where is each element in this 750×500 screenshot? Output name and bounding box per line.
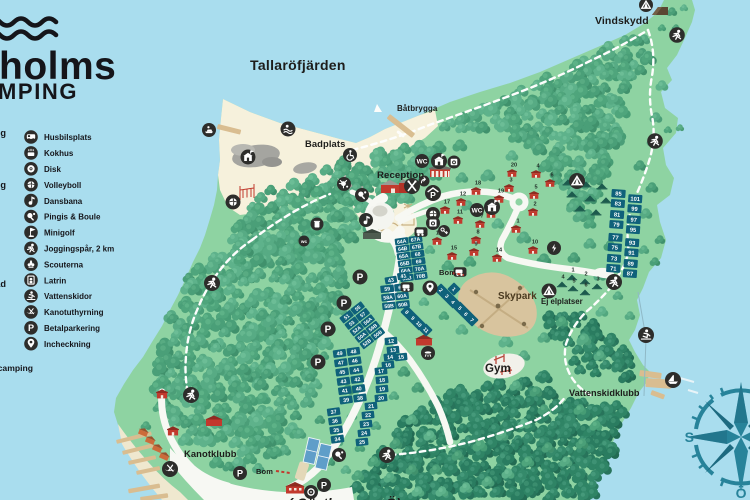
svg-text:37: 37 xyxy=(330,409,337,416)
svg-text:101: 101 xyxy=(630,196,641,203)
svg-text:79: 79 xyxy=(613,222,621,228)
svg-text:14: 14 xyxy=(496,248,503,254)
svg-text:Kokhus: Kokhus xyxy=(44,149,74,158)
svg-text:2: 2 xyxy=(584,272,587,278)
svg-text:Husbilsplats: Husbilsplats xyxy=(44,133,92,142)
svg-text:58B: 58B xyxy=(384,303,394,310)
svg-text:12: 12 xyxy=(460,192,466,198)
svg-text:P: P xyxy=(321,480,327,490)
svg-text:89: 89 xyxy=(627,261,635,267)
svg-text:P: P xyxy=(357,273,364,284)
svg-text:41: 41 xyxy=(342,388,349,395)
svg-text:Skypark: Skypark xyxy=(498,291,537,302)
svg-text:P: P xyxy=(28,323,34,333)
svg-text:P: P xyxy=(430,190,436,200)
svg-text:12: 12 xyxy=(388,339,395,346)
svg-text:42: 42 xyxy=(354,377,361,384)
svg-text:Vindskydd: Vindskydd xyxy=(595,15,649,27)
svg-text:Husvagnsparkering: Husvagnsparkering xyxy=(0,128,6,138)
svg-text:Vattenskidklubb: Vattenskidklubb xyxy=(569,388,640,398)
svg-text:Badplats: Badplats xyxy=(305,138,345,149)
svg-text:9: 9 xyxy=(474,242,477,248)
svg-text:8: 8 xyxy=(476,230,479,236)
svg-text:18: 18 xyxy=(475,181,481,187)
svg-text:Incheckning: Incheckning xyxy=(44,340,91,349)
svg-text:43: 43 xyxy=(340,379,347,386)
svg-text:73: 73 xyxy=(610,256,618,262)
svg-text:19: 19 xyxy=(379,387,386,394)
svg-text:97: 97 xyxy=(630,218,637,224)
svg-text:95: 95 xyxy=(630,228,638,234)
svg-text:24: 24 xyxy=(361,431,368,438)
svg-text:S: S xyxy=(685,429,694,445)
svg-text:44: 44 xyxy=(353,368,360,375)
svg-text:18: 18 xyxy=(379,378,386,385)
svg-text:25: 25 xyxy=(359,440,366,447)
svg-text:Minigolf: Minigolf xyxy=(44,229,75,238)
svg-text:Scouterna: Scouterna xyxy=(44,260,84,269)
svg-text:Grillplatsområd: Grillplatsområd xyxy=(0,279,6,289)
svg-text:5: 5 xyxy=(534,185,537,191)
svg-text:MPING: MPING xyxy=(0,79,78,104)
svg-text:36: 36 xyxy=(332,418,339,425)
svg-text:77: 77 xyxy=(612,235,619,241)
svg-text:Kanotuthyrning: Kanotuthyrning xyxy=(44,308,104,317)
svg-text:15: 15 xyxy=(451,246,457,252)
svg-text:P: P xyxy=(237,468,243,478)
svg-text:3: 3 xyxy=(509,178,512,184)
svg-text:87: 87 xyxy=(626,271,633,277)
svg-text:20: 20 xyxy=(378,396,385,403)
svg-text:19: 19 xyxy=(498,189,504,195)
svg-text:45: 45 xyxy=(339,369,346,376)
svg-text:Betalparkering: Betalparkering xyxy=(44,324,100,333)
svg-text:34: 34 xyxy=(334,437,341,444)
svg-text:3: 3 xyxy=(596,277,599,283)
svg-text:40: 40 xyxy=(355,386,362,393)
svg-text:Volleyboll: Volleyboll xyxy=(44,181,81,190)
svg-text:46: 46 xyxy=(351,358,358,365)
svg-text:5: 5 xyxy=(572,279,575,285)
svg-text:Vedförsäljning: Vedförsäljning xyxy=(0,180,6,190)
svg-text:Reception: Reception xyxy=(377,170,424,181)
svg-text:58A: 58A xyxy=(383,295,393,302)
svg-text:Joggingspår, 2 km: Joggingspår, 2 km xyxy=(44,245,114,254)
svg-text:Dansbana: Dansbana xyxy=(44,197,83,206)
svg-text:WC: WC xyxy=(417,158,428,165)
svg-text:Ö: Ö xyxy=(736,485,747,500)
svg-text:P: P xyxy=(341,299,348,310)
svg-text:Tallaröfjärden: Tallaröfjärden xyxy=(250,57,346,73)
svg-text:Disk: Disk xyxy=(44,165,61,174)
svg-text:38: 38 xyxy=(357,395,364,402)
svg-text:68: 68 xyxy=(414,252,421,259)
svg-text:6: 6 xyxy=(550,173,553,179)
svg-text:15: 15 xyxy=(398,355,405,362)
svg-text:Båtbrygga: Båtbrygga xyxy=(397,104,438,113)
svg-text:Vattenskidor: Vattenskidor xyxy=(44,292,92,301)
svg-text:43: 43 xyxy=(388,277,395,284)
svg-text:14: 14 xyxy=(387,355,394,362)
svg-text:Bom: Bom xyxy=(256,467,273,476)
svg-text:49: 49 xyxy=(336,351,343,358)
svg-text:( Gästhamnen Ö): ( Gästhamnen Ö) xyxy=(288,495,401,500)
svg-text:11: 11 xyxy=(457,210,463,216)
svg-text:10: 10 xyxy=(532,240,538,246)
svg-text:59: 59 xyxy=(384,286,390,293)
svg-text:71: 71 xyxy=(610,266,618,272)
svg-text:35: 35 xyxy=(333,427,340,434)
svg-text:75: 75 xyxy=(611,245,619,251)
svg-text:Latrin: Latrin xyxy=(44,276,66,285)
svg-text:21: 21 xyxy=(368,404,375,411)
svg-text:Kanotklubb: Kanotklubb xyxy=(184,448,237,459)
svg-text:1: 1 xyxy=(571,268,574,274)
svg-text:39: 39 xyxy=(343,397,350,404)
svg-text:41: 41 xyxy=(400,273,407,280)
svg-text:Ej elplatser: Ej elplatser xyxy=(541,297,583,306)
svg-text:Gym: Gym xyxy=(485,363,511,375)
svg-text:99: 99 xyxy=(631,207,639,213)
svg-text:69: 69 xyxy=(415,259,422,266)
svg-text:83: 83 xyxy=(614,201,622,207)
svg-text:60A: 60A xyxy=(397,293,407,300)
svg-text:WC: WC xyxy=(472,207,483,214)
svg-text:85: 85 xyxy=(615,191,623,197)
svg-text:91: 91 xyxy=(628,250,636,256)
svg-text:93: 93 xyxy=(629,240,637,246)
svg-text:23: 23 xyxy=(363,422,370,429)
svg-text:wc: wc xyxy=(300,239,308,244)
svg-text:Vägen till camping: Vägen till camping xyxy=(0,363,33,373)
svg-text:81: 81 xyxy=(614,212,622,218)
svg-text:17: 17 xyxy=(378,369,385,376)
svg-text:2: 2 xyxy=(533,202,536,208)
svg-text:Pingis & Boule: Pingis & Boule xyxy=(44,213,101,222)
svg-text:20: 20 xyxy=(511,163,517,169)
svg-text:P: P xyxy=(315,358,322,369)
svg-text:Bom: Bom xyxy=(439,268,456,277)
svg-text:48: 48 xyxy=(350,349,357,356)
svg-text:6: 6 xyxy=(584,283,587,289)
svg-text:47: 47 xyxy=(338,360,345,367)
svg-text:P: P xyxy=(325,325,332,336)
svg-text:1: 1 xyxy=(516,219,519,225)
svg-text:17: 17 xyxy=(444,200,450,206)
svg-text:22: 22 xyxy=(365,413,372,420)
